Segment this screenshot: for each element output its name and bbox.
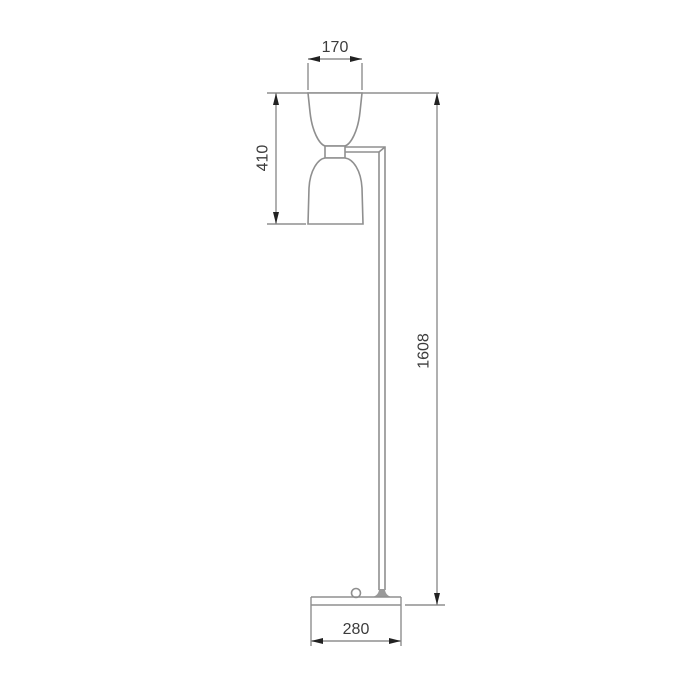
shade-connector [325, 146, 345, 158]
arrowhead-left-icon [308, 56, 320, 62]
arrowhead-up-icon [273, 93, 279, 105]
arrowhead-right-icon [389, 638, 401, 644]
dimension-label-280: 280 [343, 621, 370, 638]
lower-shade [308, 158, 363, 224]
arrowhead-left-icon [311, 638, 323, 644]
arrowhead-down-icon [273, 212, 279, 224]
dimension-label-1608: 1608 [416, 333, 433, 369]
dimension-label-410: 410 [255, 145, 272, 172]
dimension-base-width: 280 [311, 621, 401, 644]
upper-shade [308, 93, 362, 146]
pole-foot-flare [373, 589, 392, 597]
dimension-total-height: 1608 [405, 93, 445, 605]
dimension-shade-assembly-height: 410 [255, 93, 307, 224]
arrowhead-down-icon [434, 593, 440, 605]
arrowhead-up-icon [434, 93, 440, 105]
lamp-outline [308, 93, 401, 646]
floor-lamp-dimension-drawing: 170 410 1608 280 [0, 0, 700, 700]
base-grommet-circle [352, 589, 361, 598]
technical-drawing-canvas: 170 410 1608 280 [0, 0, 700, 700]
dimension-top-shade-width: 170 [308, 39, 362, 90]
arrowhead-right-icon [350, 56, 362, 62]
dimension-label-170: 170 [322, 39, 349, 56]
